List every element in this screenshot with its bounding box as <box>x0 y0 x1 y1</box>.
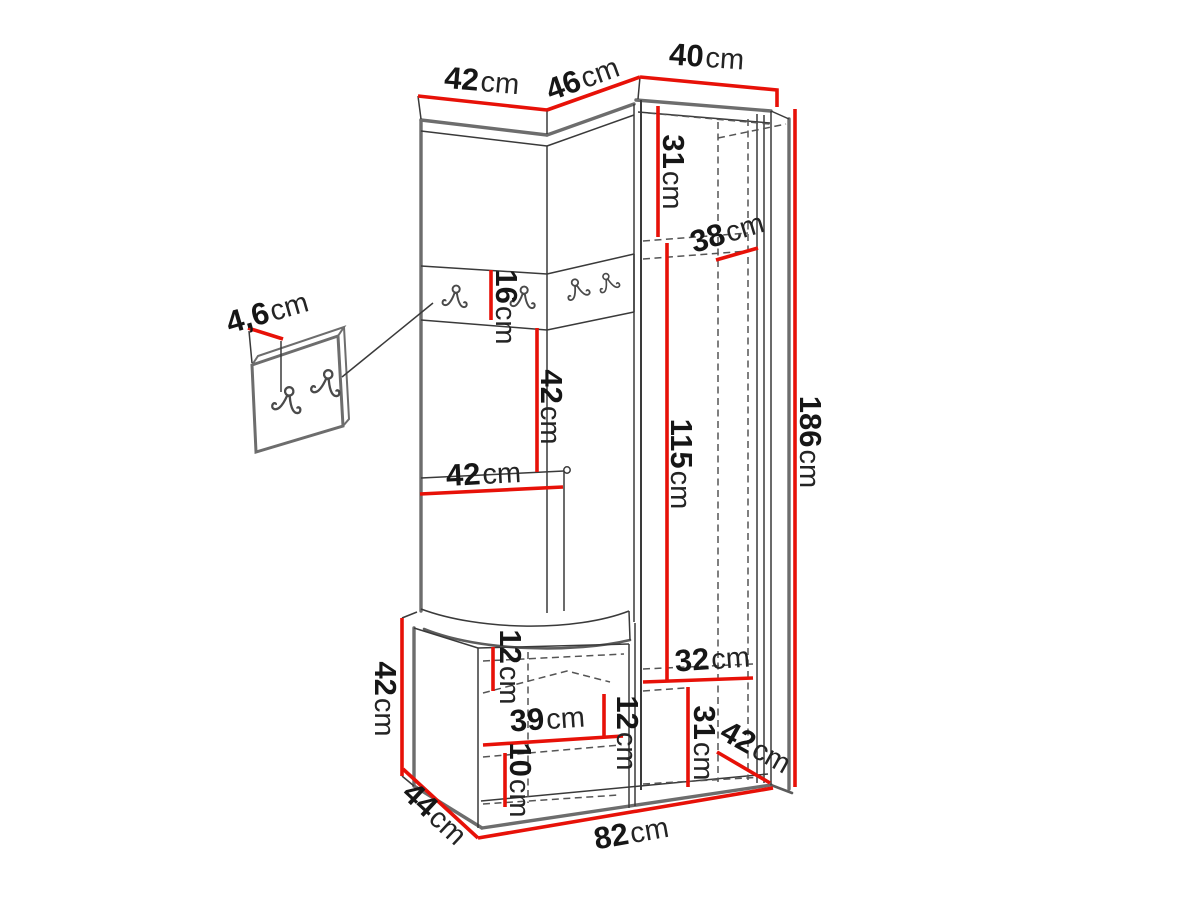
bench-cushion-right-cap <box>629 611 630 640</box>
dim-label-bench-inner-width: 39cm <box>509 698 586 738</box>
background <box>0 0 1200 899</box>
dim-label-bench-bottom-inner: 10cm <box>503 742 538 817</box>
dim-label-open-section-height: 42cm <box>534 369 569 444</box>
dim-label-bench-mid-inner: 12cm <box>610 695 645 770</box>
dim-label-hanging-space-height: 115cm <box>664 419 699 510</box>
dim-label-upper-inner-height: 31cm <box>656 134 691 209</box>
dim-label-open-section-width: 42cm <box>445 454 522 493</box>
dim-label-total-height: 186cm <box>793 396 828 488</box>
dim-label-hook-rail-height: 16cm <box>489 269 524 344</box>
dim-label-bench-top-inner: 12cm <box>493 629 528 704</box>
dim-label-bench-height: 42cm <box>368 661 403 736</box>
diagram-canvas: 42cm 46cm 40cm 31cm 38cm 115cm 186cm 16c… <box>0 0 1200 899</box>
dim-label-lower-inner-width: 32cm <box>674 638 751 678</box>
furniture-dimension-diagram: 42cm 46cm 40cm 31cm 38cm 115cm 186cm 16c… <box>0 0 1200 899</box>
